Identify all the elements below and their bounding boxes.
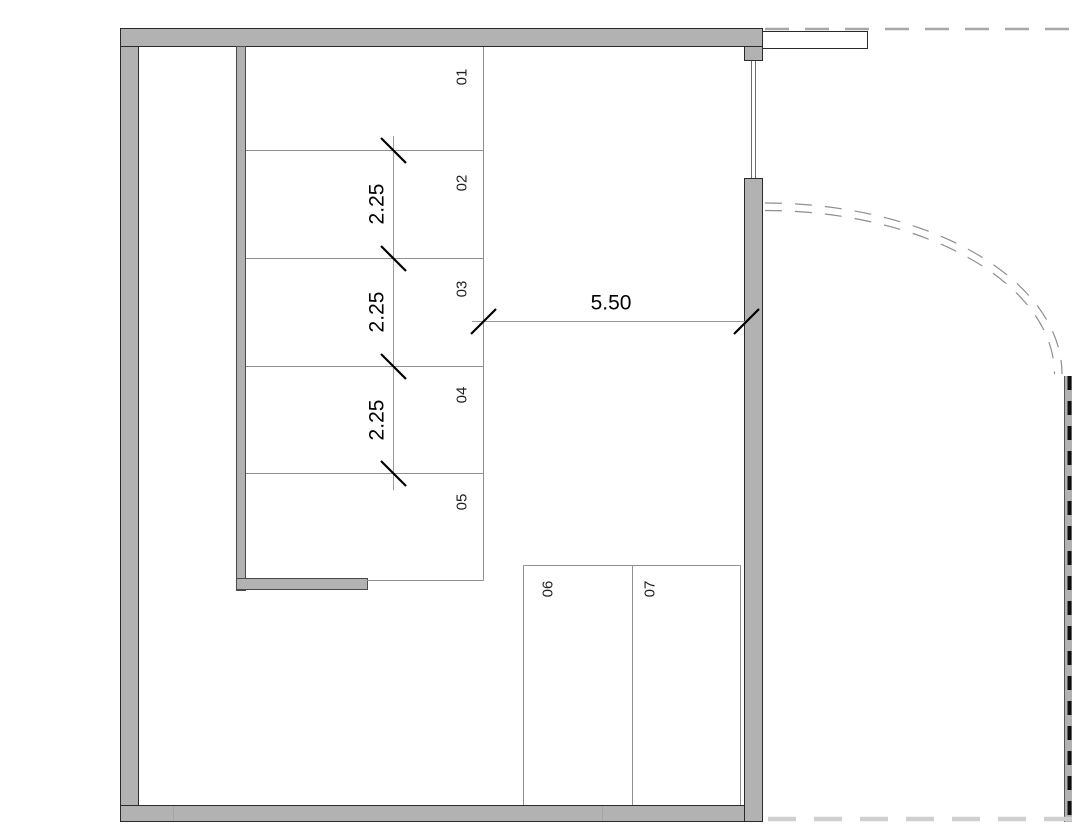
floor-plan-canvas: 01 02 03 04 05 06 07 2.25 2.25 2.25 5.50: [0, 0, 1072, 832]
stall-label-05: 05: [455, 494, 470, 511]
stall-label-06: 06: [541, 581, 556, 598]
opening-dimension-label: 5.50: [591, 293, 632, 314]
spacing-dimension-label-3: 2.25: [367, 400, 388, 441]
spacing-dimension-label-1: 2.25: [367, 184, 388, 225]
stall-label-01: 01: [455, 69, 470, 86]
spacing-dimension-label-2: 2.25: [367, 292, 388, 333]
gate-swing-arc-inner: [765, 211, 1055, 375]
gate-swing-arc-outer: [765, 203, 1062, 374]
plan-linework: [0, 0, 1072, 832]
stall-label-02: 02: [455, 175, 470, 192]
stall-label-03: 03: [455, 281, 470, 298]
stall-label-04: 04: [455, 387, 470, 404]
stall-label-07: 07: [643, 581, 658, 598]
